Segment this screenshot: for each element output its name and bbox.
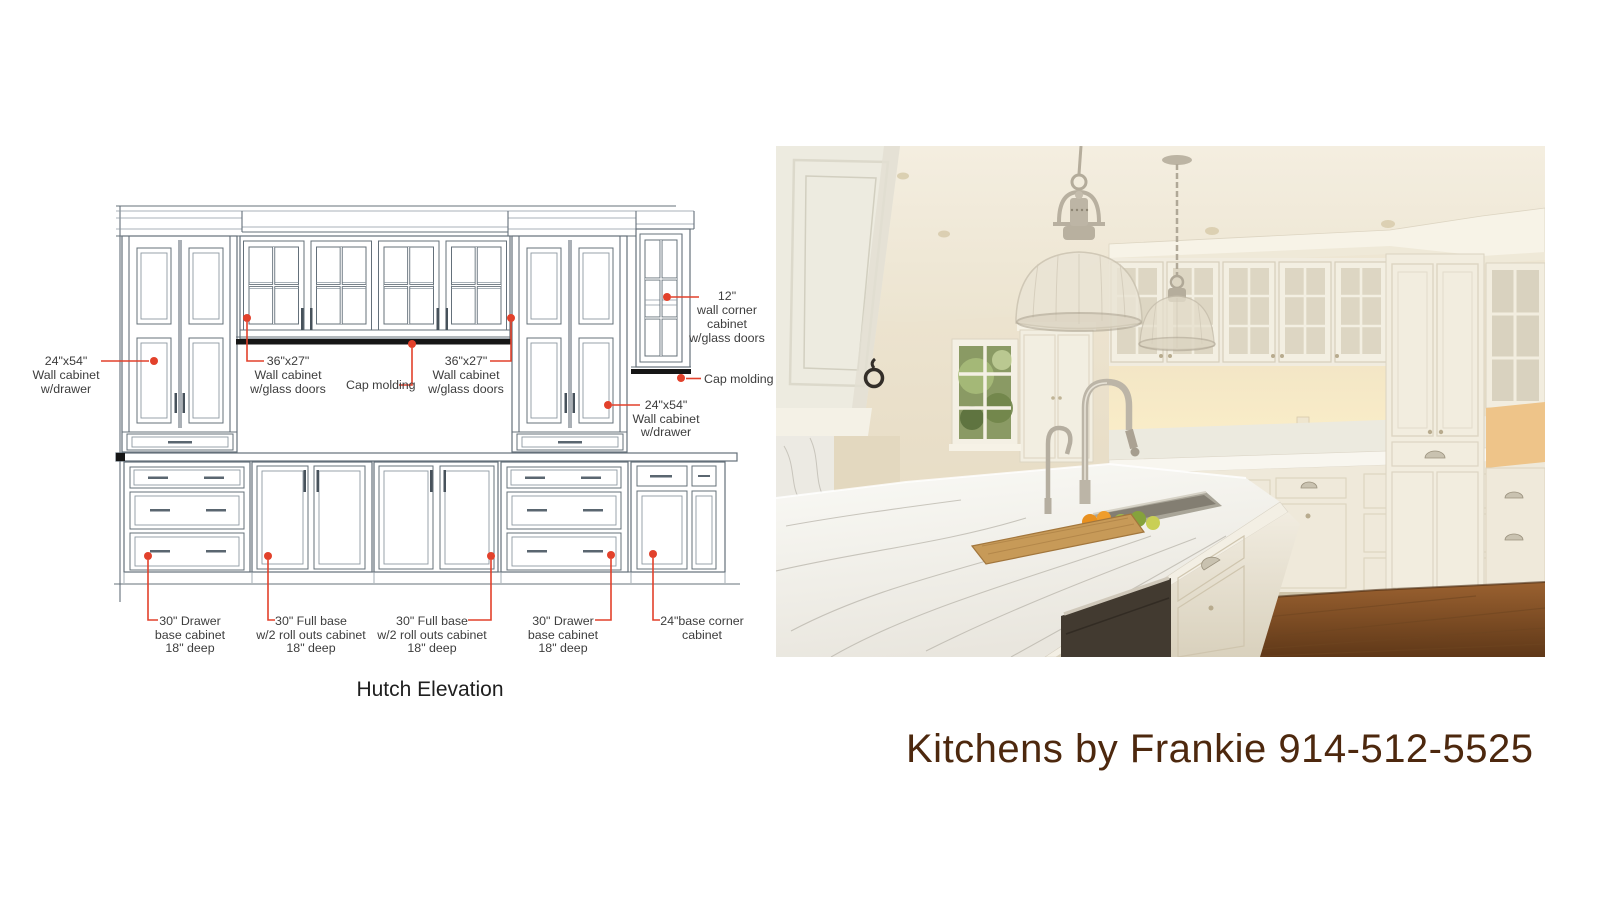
svg-text:18" deep: 18" deep <box>286 641 335 655</box>
svg-text:Wall cabinet: Wall cabinet <box>32 368 100 382</box>
window <box>949 339 1021 451</box>
svg-text:wall corner: wall corner <box>696 303 757 317</box>
svg-text:18" deep: 18" deep <box>538 641 587 655</box>
diagram-title: Hutch Elevation <box>330 678 530 702</box>
toe-kick <box>124 572 725 583</box>
callout-cap-molding-right <box>677 374 701 382</box>
svg-text:12": 12" <box>718 289 736 303</box>
svg-text:Cap molding: Cap molding <box>704 372 774 386</box>
label-corner-cabinet: 12" wall corner cabinet w/glass doors <box>688 289 765 345</box>
glass-wall-cabinet-run <box>236 236 513 345</box>
tall-wall-cabinet-right <box>512 236 627 452</box>
corner-wall-cabinet <box>631 229 691 374</box>
svg-text:18" deep: 18" deep <box>165 641 214 655</box>
page: 24"x54" Wall cabinet w/drawer 36"x27" Wa… <box>0 0 1600 924</box>
label-drawer-base-right: 30" Drawer base cabinet 18" deep <box>528 614 599 655</box>
svg-text:w/2 roll outs cabinet: w/2 roll outs cabinet <box>376 628 487 642</box>
base-corner-cabinet <box>631 462 725 572</box>
svg-text:cabinet: cabinet <box>707 317 748 331</box>
base-cabinet-run <box>124 462 725 583</box>
crown-molding <box>116 206 694 236</box>
svg-text:Cap molding: Cap molding <box>346 378 416 392</box>
mantel-ledge <box>776 408 872 436</box>
svg-text:Wall cabinet: Wall cabinet <box>432 368 500 382</box>
svg-text:w/glass doors: w/glass doors <box>249 382 326 396</box>
svg-text:36"x27": 36"x27" <box>267 354 310 368</box>
corner-glass-cabinet <box>1486 263 1545 592</box>
svg-text:24"x54": 24"x54" <box>645 398 688 412</box>
label-base-corner: 24"base corner cabinet <box>660 614 744 642</box>
svg-text:30" Full base: 30" Full base <box>396 614 468 628</box>
svg-text:base cabinet: base cabinet <box>155 628 226 642</box>
svg-text:base cabinet: base cabinet <box>528 628 599 642</box>
svg-text:w/glass doors: w/glass doors <box>688 331 765 345</box>
kitchen-photo <box>776 146 1545 657</box>
label-drawer-base-left: 30" Drawer base cabinet 18" deep <box>155 614 226 655</box>
svg-text:24"base corner: 24"base corner <box>660 614 744 628</box>
svg-text:30" Full base: 30" Full base <box>275 614 347 628</box>
cap-molding-band-right <box>631 369 691 374</box>
svg-text:cabinet: cabinet <box>682 628 723 642</box>
svg-text:Wall cabinet: Wall cabinet <box>632 412 700 426</box>
tall-cabinet <box>1386 254 1484 598</box>
tall-wall-cabinet-left <box>122 236 237 452</box>
svg-text:w/drawer: w/drawer <box>40 382 91 396</box>
label-wall-cabinet-left: 24"x54" Wall cabinet w/drawer <box>32 354 100 396</box>
svg-text:w/drawer: w/drawer <box>640 425 691 439</box>
svg-text:30" Drawer: 30" Drawer <box>532 614 594 628</box>
svg-text:30" Drawer: 30" Drawer <box>159 614 221 628</box>
svg-text:36"x27": 36"x27" <box>445 354 488 368</box>
svg-text:24"x54": 24"x54" <box>45 354 88 368</box>
hutch-elevation-diagram: 24"x54" Wall cabinet w/drawer 36"x27" Wa… <box>15 195 775 665</box>
cap-molding-band-center <box>236 339 513 345</box>
label-cap-molding-center: Cap molding <box>346 378 416 392</box>
svg-text:Wall cabinet: Wall cabinet <box>254 368 322 382</box>
svg-text:18" deep: 18" deep <box>407 641 456 655</box>
svg-text:w/glass doors: w/glass doors <box>427 382 504 396</box>
svg-text:w/2 roll outs cabinet: w/2 roll outs cabinet <box>255 628 366 642</box>
label-cap-molding-right: Cap molding <box>704 372 774 386</box>
hutch-countertop <box>116 453 737 461</box>
full-base-cabinet-2 <box>374 462 498 572</box>
drawer-base-cabinet-left <box>124 462 250 572</box>
brand-phone-text: Kitchens by Frankie 914-512-5525 <box>906 727 1533 772</box>
label-wall-cabinet-right: 24"x54" Wall cabinet w/drawer <box>632 398 700 439</box>
